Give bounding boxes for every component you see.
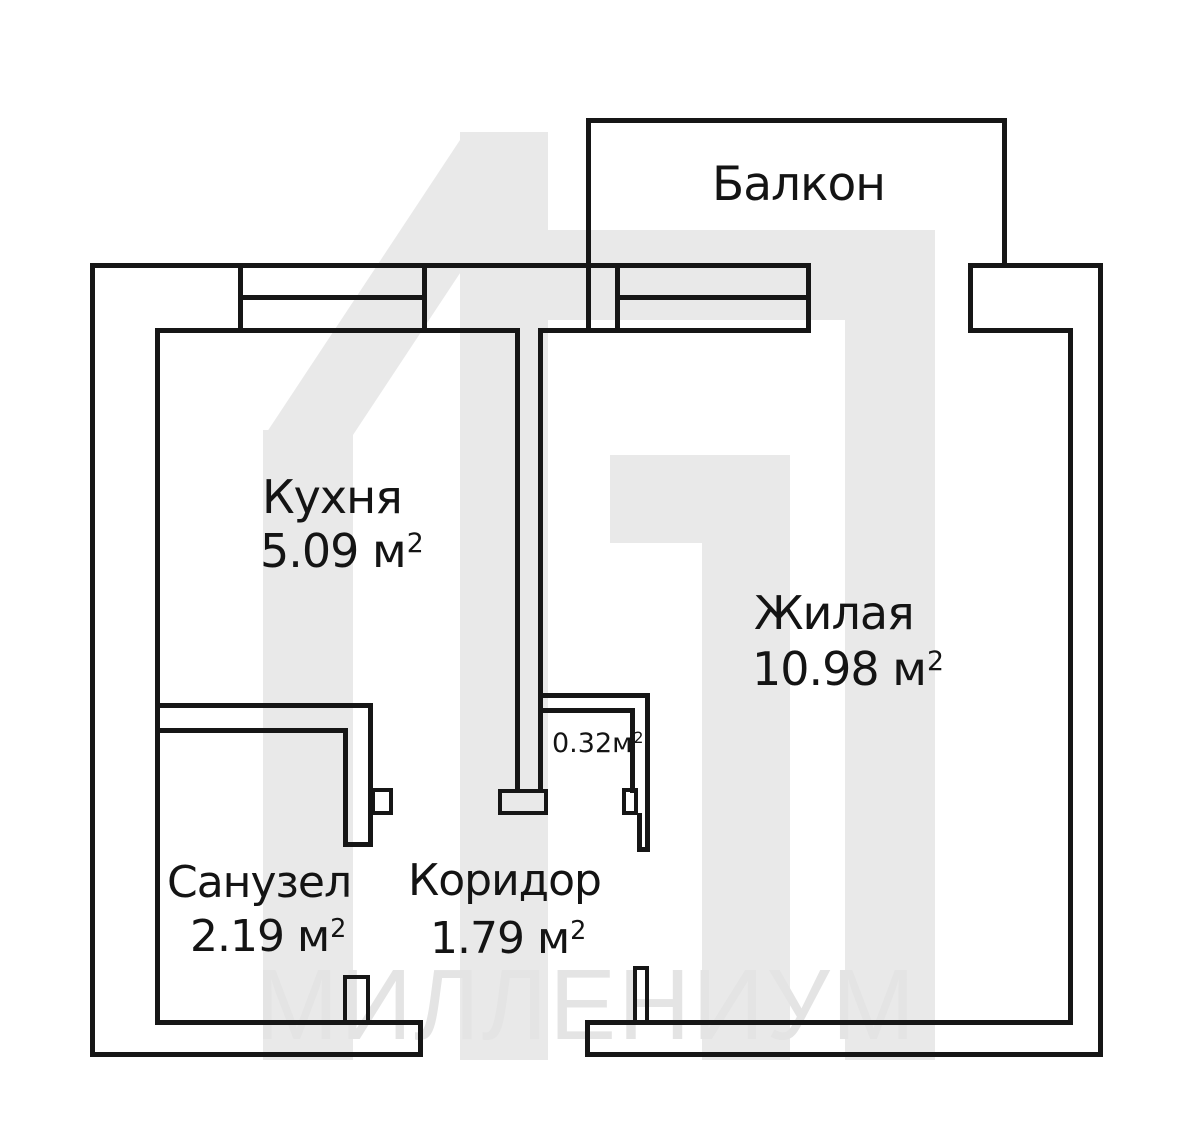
wall-end-cap xyxy=(371,788,393,815)
room-label-bathroom: Санузел xyxy=(167,860,351,906)
wall-segment xyxy=(585,1052,1103,1057)
wall-segment xyxy=(538,328,543,790)
room-name: Санузел xyxy=(167,857,351,908)
wall-segment xyxy=(968,263,1103,268)
wall-segment xyxy=(1098,263,1103,1057)
wall-segment xyxy=(155,703,373,708)
wall-segment xyxy=(515,328,520,790)
wall-segment xyxy=(540,328,810,333)
room-name: Балкон xyxy=(712,157,885,212)
room-name: Жилая xyxy=(754,586,914,640)
wall-segment xyxy=(540,708,635,713)
wall-segment xyxy=(968,328,1073,333)
wall-end-cap xyxy=(622,788,638,815)
wall-segment xyxy=(645,693,650,852)
room-label-corridor: Коридор xyxy=(408,858,601,904)
wall-segment xyxy=(155,728,348,733)
wall-segment xyxy=(586,118,1007,123)
room-name: Коридор xyxy=(408,855,601,906)
room-area-living: 10.98 м2 xyxy=(752,645,943,693)
wall-segment xyxy=(586,263,591,333)
wall-segment xyxy=(418,1020,423,1057)
wall-segment xyxy=(90,263,95,1057)
wall-segment xyxy=(155,328,160,1025)
room-label-kitchen: Кухня xyxy=(262,473,402,521)
room-label-balcony: Балкон xyxy=(712,160,885,209)
wall-segment xyxy=(585,1020,590,1057)
floor-plan: МИЛЛЕНИУМ Балкон Кухня 5.09 м2 Жилая 10.… xyxy=(0,0,1200,1129)
wall-end-cap xyxy=(498,789,548,815)
wall-segment xyxy=(1002,118,1007,268)
room-area: 5.09 м xyxy=(260,524,406,578)
wall-segment xyxy=(615,295,811,300)
room-area-sup: 2 xyxy=(407,528,423,559)
wall-segment xyxy=(637,847,650,852)
wall-segment xyxy=(1068,328,1073,1025)
wall-segment xyxy=(968,263,973,333)
room-area-sup: 2 xyxy=(634,728,644,747)
wall-segment xyxy=(343,728,348,847)
room-label-living: Жилая xyxy=(754,589,914,637)
room-area: 10.98 м xyxy=(752,642,926,696)
room-area: 1.79 м xyxy=(430,913,569,964)
wall-segment xyxy=(343,842,373,847)
room-name: Кухня xyxy=(262,470,402,524)
wall-end-cap xyxy=(633,966,649,1024)
room-area: 0.32м xyxy=(552,728,633,759)
room-area-bathroom: 2.19 м2 xyxy=(190,914,345,960)
wall-segment xyxy=(586,118,591,268)
room-area-sup: 2 xyxy=(927,646,943,677)
wall-segment xyxy=(90,263,810,268)
wall-segment xyxy=(585,1020,1073,1025)
room-area-kitchen: 5.09 м2 xyxy=(260,527,423,575)
wall-segment xyxy=(155,328,520,333)
room-area-sup: 2 xyxy=(570,916,585,946)
room-area-closet: 0.32м2 xyxy=(552,730,643,758)
wall-segment xyxy=(540,693,650,698)
room-area-sup: 2 xyxy=(330,914,345,944)
room-area: 2.19 м xyxy=(190,911,329,962)
wall-segment xyxy=(238,295,427,300)
room-area-corridor: 1.79 м2 xyxy=(430,916,585,962)
wall-segment xyxy=(90,1052,423,1057)
wall-segment xyxy=(368,703,373,847)
wall-segment xyxy=(155,1020,421,1025)
wall-end-cap xyxy=(343,975,370,1025)
